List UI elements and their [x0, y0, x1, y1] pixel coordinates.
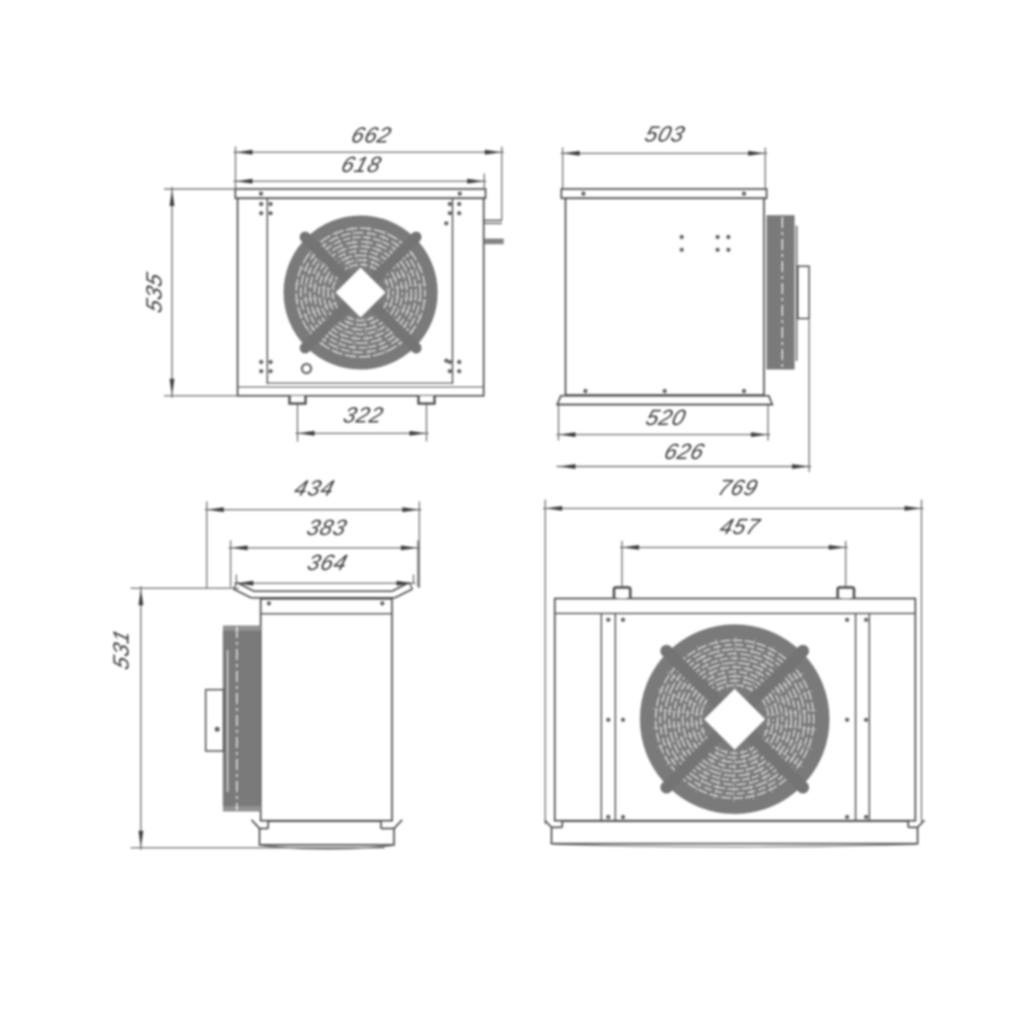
- svg-text:434: 434: [292, 476, 338, 501]
- svg-text:626: 626: [662, 439, 708, 464]
- svg-text:322: 322: [341, 403, 387, 428]
- svg-text:503: 503: [642, 122, 688, 147]
- svg-text:520: 520: [643, 405, 689, 430]
- svg-text:618: 618: [339, 152, 385, 177]
- svg-text:535: 535: [142, 269, 167, 315]
- svg-text:457: 457: [717, 514, 764, 539]
- svg-text:769: 769: [715, 475, 761, 500]
- svg-text:364: 364: [305, 550, 351, 575]
- svg-text:662: 662: [349, 123, 395, 148]
- svg-text:383: 383: [304, 515, 350, 540]
- svg-text:531: 531: [109, 626, 134, 672]
